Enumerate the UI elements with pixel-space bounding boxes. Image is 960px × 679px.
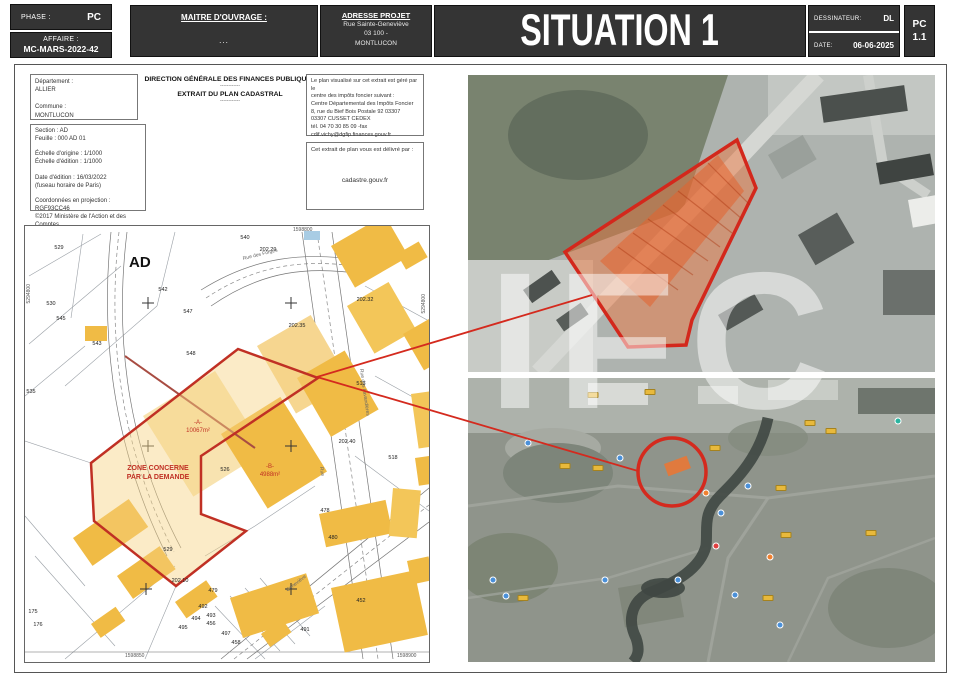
phase-label: PHASE :: [21, 14, 51, 21]
yellow-map-pin: [805, 420, 816, 426]
coord-label-top: 1598800: [293, 227, 312, 233]
text-line: Commune :: [35, 103, 133, 111]
blue-map-pin: [718, 510, 725, 517]
plan-sheet: PHASE : PC AFFAIRE : MC-MARS-2022-42 MAI…: [0, 0, 960, 679]
parcel-number: 548: [186, 351, 195, 357]
parcel-number: 543: [92, 341, 101, 347]
text-line: [35, 167, 141, 175]
yellow-map-pin: [866, 530, 877, 536]
cadastre-identity-box: Département :ALLIER Commune :MONTLUCON: [30, 74, 138, 120]
sheet-title: SITUATION 1: [521, 6, 720, 57]
blue-map-pin: [675, 577, 682, 584]
date-value: 06-06-2025: [853, 41, 894, 50]
text-line: Centre Départemental des Impôts Foncier: [311, 101, 419, 109]
delivery-label: Cet extrait de plan vous est délivré par…: [311, 146, 419, 154]
zone-line2: PAR LA DEMANDE: [127, 473, 190, 482]
text-line: Le plan visualisé sur cet extrait est gé…: [311, 78, 419, 93]
doc-code: PC: [913, 19, 927, 30]
parcel-number: 518: [388, 455, 397, 461]
blue-map-pin: [777, 622, 784, 629]
parcel-number: 175: [28, 609, 37, 615]
text-line: cdif.vichy@dgfip.finances.gouv.fr: [311, 132, 419, 140]
text-line: Échelle d'édition : 1/1000: [35, 159, 141, 167]
affaire-value: MC-MARS-2022-42: [23, 44, 98, 54]
blue-map-pin: [503, 593, 510, 600]
blue-map-pin: [745, 483, 752, 490]
yellow-map-pin: [593, 465, 604, 471]
text-line: Coordonnées en projection : RGF93CC46: [35, 198, 141, 214]
coord-label-left: 5294800: [26, 284, 32, 303]
parcel-b-name: -B-: [260, 464, 280, 472]
parcel-number: 479: [208, 588, 217, 594]
adresse-label: ADRESSE PROJET: [321, 11, 431, 20]
yellow-map-pin: [826, 428, 837, 434]
coord-label-bottom-left: 1598850: [125, 653, 144, 659]
text-line: MONTLUCON: [35, 112, 133, 120]
red-map-pin: [713, 543, 720, 550]
parcel-number: 202.10: [172, 578, 189, 584]
phase-box: PHASE : PC: [10, 4, 112, 30]
yellow-map-pin: [781, 532, 792, 538]
dessinateur-date-box: DESSINATEUR: DL DATE: 06-06-2025: [808, 5, 900, 57]
parcel-number: 202.32: [357, 297, 374, 303]
text-line: tél. 04 70 30 85 09 -fax: [311, 124, 419, 132]
text-line: Section : AD: [35, 128, 141, 136]
separator: ------------: [140, 98, 320, 104]
adresse-line: 03 100 -: [321, 29, 431, 38]
text-line: 03307 CUSSET CEDEX: [311, 116, 419, 124]
maitre-ouvrage-value: ...: [131, 36, 317, 45]
blue-map-pin: [525, 440, 532, 447]
date-row: DATE: 06-06-2025: [809, 33, 899, 58]
cadastral-map-drawing: [25, 226, 429, 662]
parcel-number: 491: [300, 627, 309, 633]
parcel-number: 202.35: [289, 323, 306, 329]
adresse-line: Rue Sainte-Geneviève: [321, 20, 431, 29]
yellow-map-pin: [518, 595, 529, 601]
parcel-number: 493: [206, 613, 215, 619]
orange-map-pin: [767, 554, 774, 561]
adresse-line: MONTLUCON: [321, 39, 431, 48]
section-label: AD: [129, 254, 151, 271]
blue-map-pin: [490, 577, 497, 584]
doc-number-box: PC 1.1: [904, 5, 935, 57]
affaire-label: AFFAIRE :: [43, 36, 79, 43]
blue-map-pin: [602, 577, 609, 584]
aerial-photo-city: [468, 378, 935, 662]
parcel-number: 540: [240, 235, 249, 241]
parcel-number: 176: [33, 622, 42, 628]
teal-map-pin: [895, 418, 902, 425]
street-label: Rue: [318, 467, 325, 477]
coord-label-right: 5294800: [421, 294, 427, 313]
orange-map-pin: [703, 490, 710, 497]
parcel-b-area: 4988m²: [260, 472, 280, 480]
text-line: [35, 95, 133, 103]
parcel-number: 545: [56, 316, 65, 322]
yellow-map-pin: [645, 389, 656, 395]
parcel-a-annotation: -A- 10067m²: [186, 420, 210, 436]
zone-line1: ZONE CONCERNE: [127, 464, 190, 473]
parcel-a-name: -A-: [186, 420, 210, 428]
phase-value: PC: [87, 12, 101, 23]
blue-map-pin: [732, 592, 739, 599]
parcel-number: 458: [231, 640, 240, 646]
text-line: ALLIER: [35, 86, 133, 94]
dessinateur-value: DL: [883, 14, 894, 23]
agency-title: DIRECTION GÉNÉRALE DES FINANCES PUBLIQUE…: [140, 76, 320, 83]
text-line: Feuille : 000 AD 01: [35, 136, 141, 144]
yellow-map-pin: [763, 595, 774, 601]
sheet-title-box: SITUATION 1: [434, 5, 806, 57]
parcel-number: 497: [221, 631, 230, 637]
delivery-box: Cet extrait de plan vous est délivré par…: [306, 142, 424, 210]
doc-number: 1.1: [913, 32, 927, 43]
blue-map-pin: [617, 455, 624, 462]
yellow-map-pin: [776, 485, 787, 491]
parcel-a-area: 10067m²: [186, 428, 210, 436]
parcel-number: 529: [163, 547, 172, 553]
parcel-number: 542: [158, 287, 167, 293]
maitre-ouvrage-box: MAITRE D'OUVRAGE : ...: [130, 5, 318, 57]
date-label: DATE:: [814, 43, 833, 49]
dessinateur-row: DESSINATEUR: DL: [809, 6, 899, 31]
coord-label-bottom-right: 1598900: [397, 653, 416, 659]
parcel-number: 526: [220, 467, 229, 473]
text-line: Date d'édition : 16/03/2022: [35, 175, 141, 183]
text-line: Département :: [35, 78, 133, 86]
text-line: (fuseau horaire de Paris): [35, 183, 141, 191]
separator: ------------: [140, 83, 320, 89]
yellow-map-pin: [588, 392, 599, 398]
maitre-ouvrage-label: MAITRE D'OUVRAGE :: [131, 13, 317, 22]
tax-center-notice-box: Le plan visualisé sur cet extrait est gé…: [306, 74, 424, 136]
parcel-number: 495: [178, 625, 187, 631]
zone-annotation: ZONE CONCERNE PAR LA DEMANDE: [127, 464, 190, 482]
parcel-number: 535: [26, 389, 35, 395]
extract-title: EXTRAIT DU PLAN CADASTRAL: [140, 91, 320, 98]
parcel-number: 547: [183, 309, 192, 315]
delivery-site: cadastre.gouv.fr: [311, 176, 419, 185]
text-line: [35, 190, 141, 198]
parcel-number: 456: [206, 621, 215, 627]
parcel-number: 452: [356, 598, 365, 604]
parcel-number: 494: [191, 616, 200, 622]
dessinateur-label: DESSINATEUR:: [814, 16, 862, 22]
parcel-b-annotation: -B- 4988m²: [260, 464, 280, 480]
parcel-number: 202.40: [339, 439, 356, 445]
yellow-map-pin: [560, 463, 571, 469]
cadastre-detail-box: Section : ADFeuille : 000 AD 01 Échelle …: [30, 124, 146, 211]
parcel-number: 480: [328, 535, 337, 541]
text-line: centre des impôts foncier suivant :: [311, 93, 419, 101]
parcel-number: 492: [198, 604, 207, 610]
cadastre-title: DIRECTION GÉNÉRALE DES FINANCES PUBLIQUE…: [140, 76, 320, 104]
parcel-number: 530: [46, 301, 55, 307]
adresse-projet-box: ADRESSE PROJET Rue Sainte-Geneviève 03 1…: [320, 5, 432, 57]
aerial-photo-site: [468, 75, 935, 372]
cadastral-map: AD 529540202.295425475435485305455355265…: [24, 225, 430, 663]
affaire-box: AFFAIRE : MC-MARS-2022-42: [10, 32, 112, 58]
parcel-number: 529: [54, 245, 63, 251]
parcel-number: 478: [320, 508, 329, 514]
text-line: 8, rue du Bief Bois Postale 92 03307: [311, 109, 419, 117]
yellow-map-pin: [710, 445, 721, 451]
